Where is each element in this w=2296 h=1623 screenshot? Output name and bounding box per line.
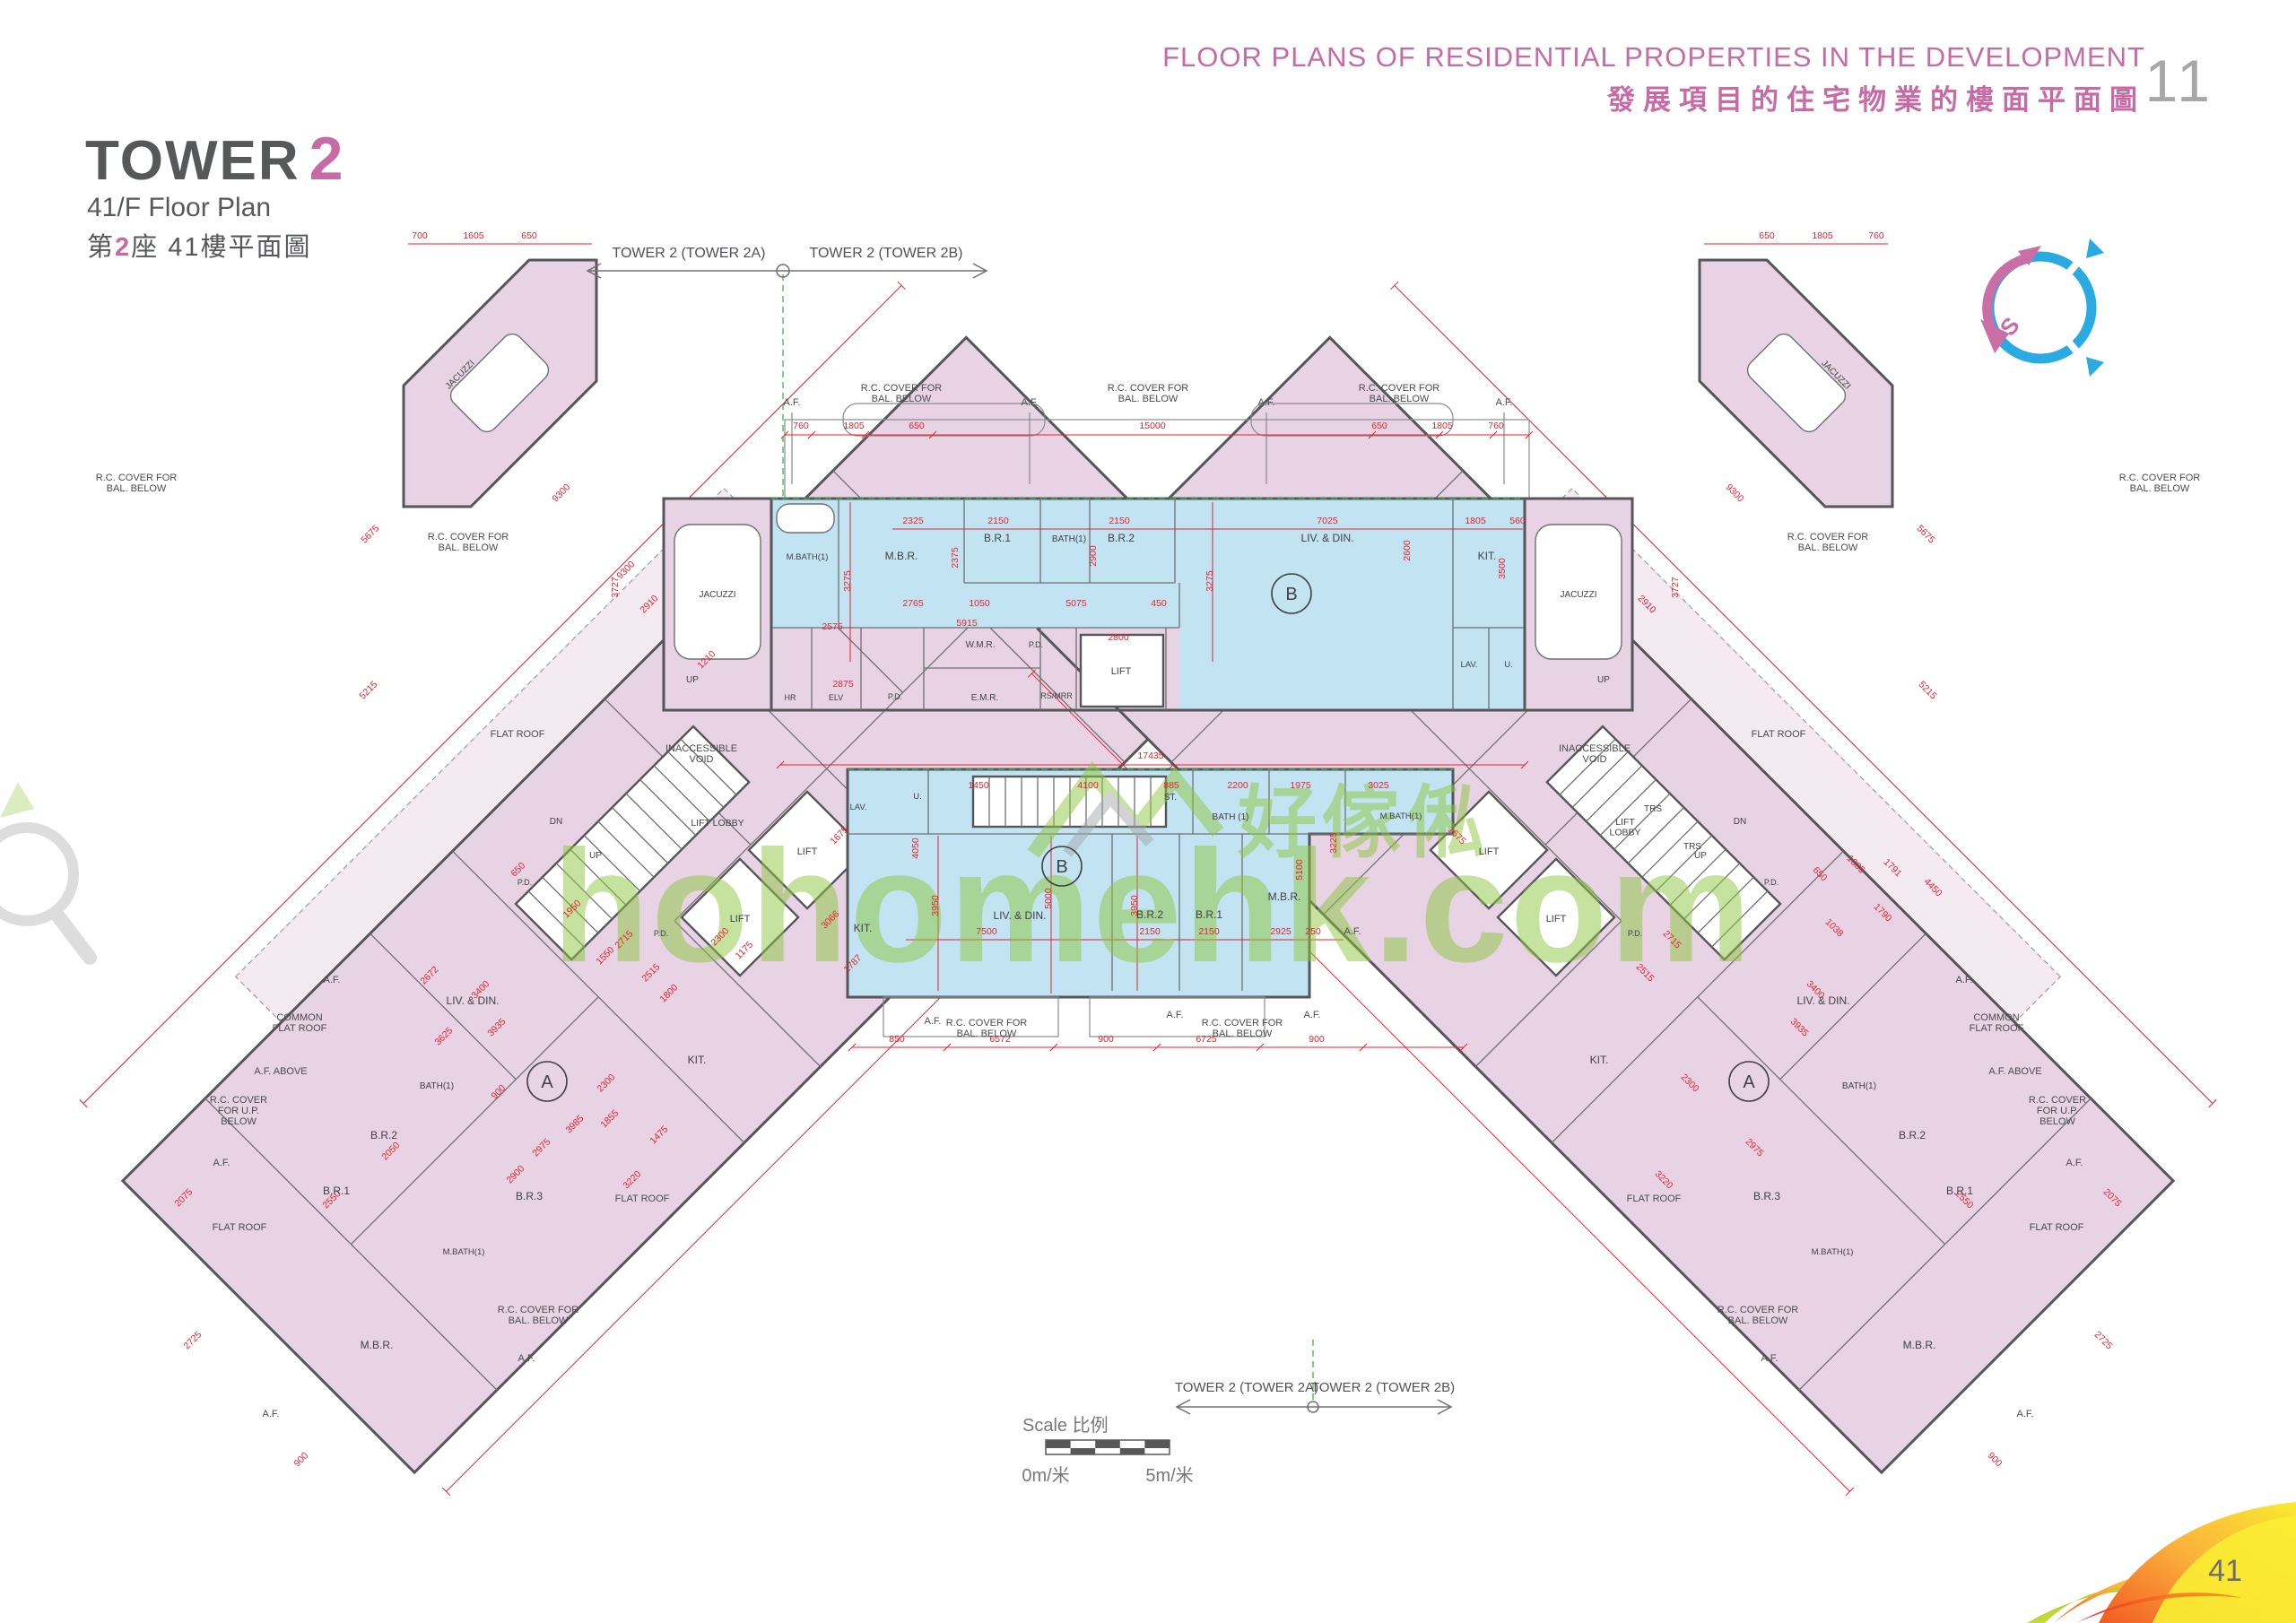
- dimension-label: 2925: [1270, 926, 1291, 937]
- room-label: LIFT: [730, 914, 751, 924]
- wing-top-suite-left: [404, 260, 596, 507]
- room-label: P.D.: [1628, 929, 1642, 938]
- room-label: M.B.R.: [361, 1339, 394, 1351]
- dimension-label: 2725: [181, 1329, 204, 1351]
- annotation-label: R.C. COVER FORBAL. BELOW: [1202, 1018, 1283, 1039]
- room-label: BATH(1): [1842, 1081, 1876, 1091]
- annotation-label: A.F.: [213, 1158, 230, 1168]
- room-label: B.R.1: [984, 532, 1011, 544]
- room-label: B.R.1: [1946, 1185, 1973, 1197]
- dimension-label: 2600: [1402, 540, 1413, 561]
- dimension-label: 9300: [1724, 482, 1746, 504]
- room-label: W.M.R.: [966, 640, 996, 650]
- dimension-label: 3275: [1205, 570, 1215, 592]
- dimension-label: 3500: [1497, 558, 1508, 579]
- section-label-2a: TOWER 2 (TOWER 2A): [613, 246, 766, 261]
- dimension-label: 7025: [1317, 516, 1338, 526]
- dimension-label: 2765: [902, 598, 924, 609]
- annotation-label: FLAT ROOF: [1627, 1193, 1682, 1204]
- annotation-label: FLAT ROOF: [615, 1193, 670, 1204]
- room-label: UP: [1597, 675, 1610, 685]
- annotation-label: R.C. COVER FORBAL. BELOW: [1787, 532, 1869, 553]
- dimension-label: 850: [889, 1034, 905, 1045]
- room-label: UP: [686, 675, 699, 685]
- dimension-label: 3727: [610, 577, 621, 598]
- room-label: LIV. & DIN.: [1301, 532, 1354, 544]
- annotation-label: A.F.: [1344, 926, 1361, 937]
- annotation-label: R.C. COVER FORBAL. BELOW: [2119, 473, 2201, 494]
- dimension-label: 3025: [1368, 780, 1389, 791]
- annotation-label: A.F.: [784, 397, 801, 408]
- wing-top-suite-right: [1700, 260, 1892, 507]
- room-label: P.D.: [1029, 640, 1043, 649]
- dimension-label: 900: [1309, 1034, 1325, 1045]
- dimension-label: 5075: [1065, 598, 1087, 609]
- annotation-label: A.F.: [1167, 1010, 1184, 1020]
- room-label: U.: [1504, 660, 1513, 670]
- section-marker-bottom: TOWER 2 (TOWER 2A) TOWER 2 (TOWER 2B): [1175, 1380, 1455, 1414]
- dimension-label: 2150: [1198, 926, 1220, 937]
- dimension-label: 1605: [463, 230, 484, 241]
- dimension-label: 900: [1098, 1034, 1114, 1045]
- dimension-label: 3727: [1670, 577, 1681, 598]
- room-label: P.D.: [654, 929, 668, 938]
- annotation-label: R.C. COVER FORBAL. BELOW: [498, 1305, 579, 1326]
- room-label: B.R.3: [1753, 1190, 1780, 1202]
- room-label: LIV. & DIN.: [1797, 994, 1850, 1007]
- annotation-label: A.F.: [518, 1353, 535, 1364]
- dimension-label: 1975: [1290, 780, 1311, 791]
- dimension-label: 2200: [1227, 780, 1248, 791]
- dimension-label: 5100: [1294, 859, 1305, 881]
- room-label: KIT.: [1478, 550, 1497, 562]
- room-label: KIT.: [1590, 1054, 1609, 1066]
- dimension-label: 2150: [1109, 516, 1130, 526]
- dimension-label: 5000: [1043, 888, 1054, 909]
- room-label: B.R.1: [323, 1185, 350, 1197]
- floor-plan-drawing: TOWER 2 (TOWER 2A) TOWER 2 (TOWER 2B) TO…: [0, 0, 2296, 1623]
- dimension-label: 900: [291, 1450, 310, 1469]
- dimension-label: 5915: [956, 618, 978, 629]
- dimension-label: 760: [1488, 421, 1504, 431]
- room-label: P.D.: [888, 692, 902, 701]
- room-label: ELV: [829, 693, 843, 702]
- unit-label: A: [541, 1072, 553, 1092]
- dimension-label: 1805: [1465, 516, 1486, 526]
- annotation-label: FLAT ROOF: [491, 729, 545, 740]
- room-label: JACUZZI: [1560, 590, 1596, 600]
- page-number: 41: [2208, 1554, 2242, 1589]
- scale-bar: Scale 比例 0m/米 5m/米: [1022, 1415, 1193, 1486]
- room-label: HR: [785, 693, 796, 702]
- room-label: LAV.: [1460, 660, 1477, 670]
- dimension-label: 2375: [950, 547, 961, 568]
- annotation-label: A.F.: [2017, 1409, 2034, 1419]
- dimension-label: 15000: [1139, 421, 1165, 431]
- room-label: B.R.1: [1196, 908, 1222, 921]
- room-label: RS/MRR: [1040, 691, 1073, 700]
- dimension-label: 900: [1986, 1450, 2005, 1469]
- annotation-label: A.F.: [1258, 397, 1275, 408]
- dimension-label: 700: [412, 230, 428, 241]
- annotation-label: R.C. COVER FORBAL. BELOW: [1718, 1305, 1799, 1326]
- dimension-label: 760: [793, 421, 809, 431]
- room-label: P.D.: [517, 878, 532, 887]
- room-label: B.R.2: [1136, 908, 1163, 921]
- room-label: M.BATH(1): [443, 1247, 485, 1257]
- dimension-label: 5675: [359, 523, 381, 545]
- dimension-label: 650: [909, 421, 925, 431]
- room-label: LIFT: [1479, 846, 1500, 857]
- annotation-label: A.F.: [1761, 1353, 1779, 1364]
- dimension-label: 2150: [1139, 926, 1161, 937]
- dimension-label: 5215: [357, 679, 379, 701]
- annotation-label: FLAT ROOF: [213, 1222, 267, 1233]
- room-label: BATH(1): [420, 1081, 454, 1091]
- scale-label: Scale 比例: [1022, 1415, 1109, 1436]
- dimension-label: 2325: [902, 516, 924, 526]
- section-label-2a: TOWER 2 (TOWER 2A): [1175, 1380, 1318, 1395]
- dimension-label: 2900: [1088, 545, 1099, 567]
- annotation-label: A.F. ABOVE: [1988, 1066, 2041, 1077]
- corner-art: [2027, 1453, 2296, 1623]
- annotation-label: COMMONFLAT ROOF: [1970, 1012, 2024, 1034]
- dimension-label: 1450: [968, 780, 989, 791]
- room-label: BATH(1): [1052, 534, 1086, 544]
- dimension-label: 2875: [832, 679, 854, 690]
- annotation-label: R.C. COVER FORBAL. BELOW: [1359, 383, 1440, 404]
- annotation-label: A.F. ABOVE: [254, 1066, 307, 1077]
- annotation-label: COMMONFLAT ROOF: [273, 1012, 327, 1034]
- room-label: LIFT: [797, 846, 818, 857]
- jacuzzi-room-right: [1525, 499, 1632, 710]
- room-label: TRS: [1644, 804, 1662, 814]
- dimension-label: 4050: [910, 838, 921, 859]
- room-label: ST.: [1164, 793, 1177, 803]
- section-label-2b: TOWER 2 (TOWER 2B): [1311, 1380, 1455, 1395]
- room-label: LIV. & DIN.: [994, 909, 1047, 922]
- scale-start: 0m/米: [1022, 1465, 1069, 1486]
- dimension-label: 2150: [987, 516, 1009, 526]
- room-label: M.BATH(1): [1380, 811, 1422, 821]
- room-label: KIT.: [854, 922, 873, 934]
- bathtub: [777, 504, 834, 533]
- dimension-label: 885: [1163, 780, 1179, 791]
- room-label: M.B.R.: [1268, 890, 1301, 903]
- annotation-label: R.C. COVER FORBAL. BELOW: [428, 532, 509, 553]
- room-label: U.: [913, 792, 922, 802]
- dimension-label: 250: [1305, 926, 1321, 937]
- compass-icon: S: [1980, 239, 2104, 377]
- room-label: M.B.R.: [1903, 1339, 1936, 1351]
- dimension-label: 760: [1868, 230, 1884, 241]
- dimension-label: 9300: [550, 482, 572, 504]
- dimension-label: 5675: [1915, 523, 1937, 545]
- room-label: JACUZZI: [699, 590, 735, 600]
- room-label: DN: [1734, 817, 1746, 827]
- annotation-label: A.F.: [1956, 975, 1973, 985]
- dimension-label: 5215: [1917, 679, 1939, 701]
- dimension-label: 9300: [614, 559, 637, 581]
- annotation-label: R.C. COVER FORBAL. BELOW: [946, 1018, 1028, 1039]
- annotation-label: A.F.: [263, 1409, 280, 1419]
- room-label: B.R.2: [1899, 1129, 1926, 1141]
- scale-end: 5m/米: [1145, 1465, 1193, 1486]
- room-label: LIFT: [1111, 666, 1132, 677]
- section-marker-top: TOWER 2 (TOWER 2A) TOWER 2 (TOWER 2B): [587, 246, 987, 278]
- annotation-label: R.C. COVER FORBAL. BELOW: [1108, 383, 1189, 404]
- room-label: LIFT: [1546, 914, 1567, 924]
- room-label: UP: [589, 851, 602, 861]
- room-label: M.BATH(1): [1812, 1247, 1854, 1257]
- dimension-label: 650: [1759, 230, 1775, 241]
- section-label-2b: TOWER 2 (TOWER 2B): [810, 246, 963, 261]
- dimension-label: 3275: [842, 570, 853, 592]
- annotation-label: A.F.: [1022, 397, 1039, 408]
- room-label: UP: [1694, 851, 1707, 861]
- room-label: M.BATH(1): [787, 552, 829, 562]
- dimension-label: 3950: [930, 895, 941, 916]
- annotation-label: A.F.: [925, 1016, 942, 1027]
- room-label: LIV. & DIN.: [447, 994, 500, 1007]
- annotation-label: A.F.: [2066, 1158, 2083, 1168]
- dimension-label: 1805: [843, 421, 865, 431]
- dimension-label: 1805: [1812, 230, 1833, 241]
- annotation-label: FLAT ROOF: [2030, 1222, 2084, 1233]
- room-label: LAV.: [849, 803, 866, 812]
- dimension-label: 2800: [1108, 632, 1129, 643]
- watermark-magnifier-icon: [0, 782, 90, 958]
- dimension-label: 7500: [976, 926, 997, 937]
- room-label: B.R.2: [370, 1129, 397, 1141]
- room-label: BATH (1): [1213, 812, 1249, 822]
- dimension-label: 650: [1371, 421, 1387, 431]
- annotation-label: A.F.: [1304, 1010, 1321, 1020]
- room-label: B.R.2: [1108, 532, 1135, 544]
- dimension-label: 4100: [1077, 780, 1099, 791]
- annotation-label: R.C. COVER FORBAL. BELOW: [861, 383, 943, 404]
- dimension-label: 450: [1151, 598, 1167, 609]
- room-label: P.D.: [1764, 878, 1779, 887]
- unit-label: B: [1285, 585, 1297, 604]
- dimension-label: 650: [521, 230, 537, 241]
- room-label: DN: [550, 817, 562, 827]
- room-label: M.B.R.: [885, 550, 918, 562]
- annotation-label: R.C. COVER FORBAL. BELOW: [96, 473, 178, 494]
- room-label: E.M.R.: [971, 693, 999, 703]
- unit-label: B: [1056, 857, 1067, 877]
- dimension-label: 17435: [1137, 751, 1163, 761]
- dimension-label: 1805: [1431, 421, 1453, 431]
- dimension-label: 560: [1509, 516, 1526, 526]
- jacuzzi-room-left: [664, 499, 771, 710]
- dimension-label: 1050: [969, 598, 990, 609]
- annotation-label: A.F.: [324, 975, 341, 985]
- room-label: KIT.: [688, 1054, 707, 1066]
- watermark-site: hohomehk.com: [552, 817, 1752, 995]
- annotation-label: A.F.: [1496, 397, 1513, 408]
- room-label: B.R.3: [516, 1190, 543, 1202]
- dimension-label: 2575: [822, 621, 843, 632]
- annotation-label: FLAT ROOF: [1752, 729, 1806, 740]
- dimension-label: 2725: [2092, 1329, 2115, 1351]
- room-label: LIFT LOBBY: [691, 818, 744, 829]
- unit-label: A: [1743, 1072, 1755, 1092]
- dimension-label: 3225: [1328, 832, 1339, 854]
